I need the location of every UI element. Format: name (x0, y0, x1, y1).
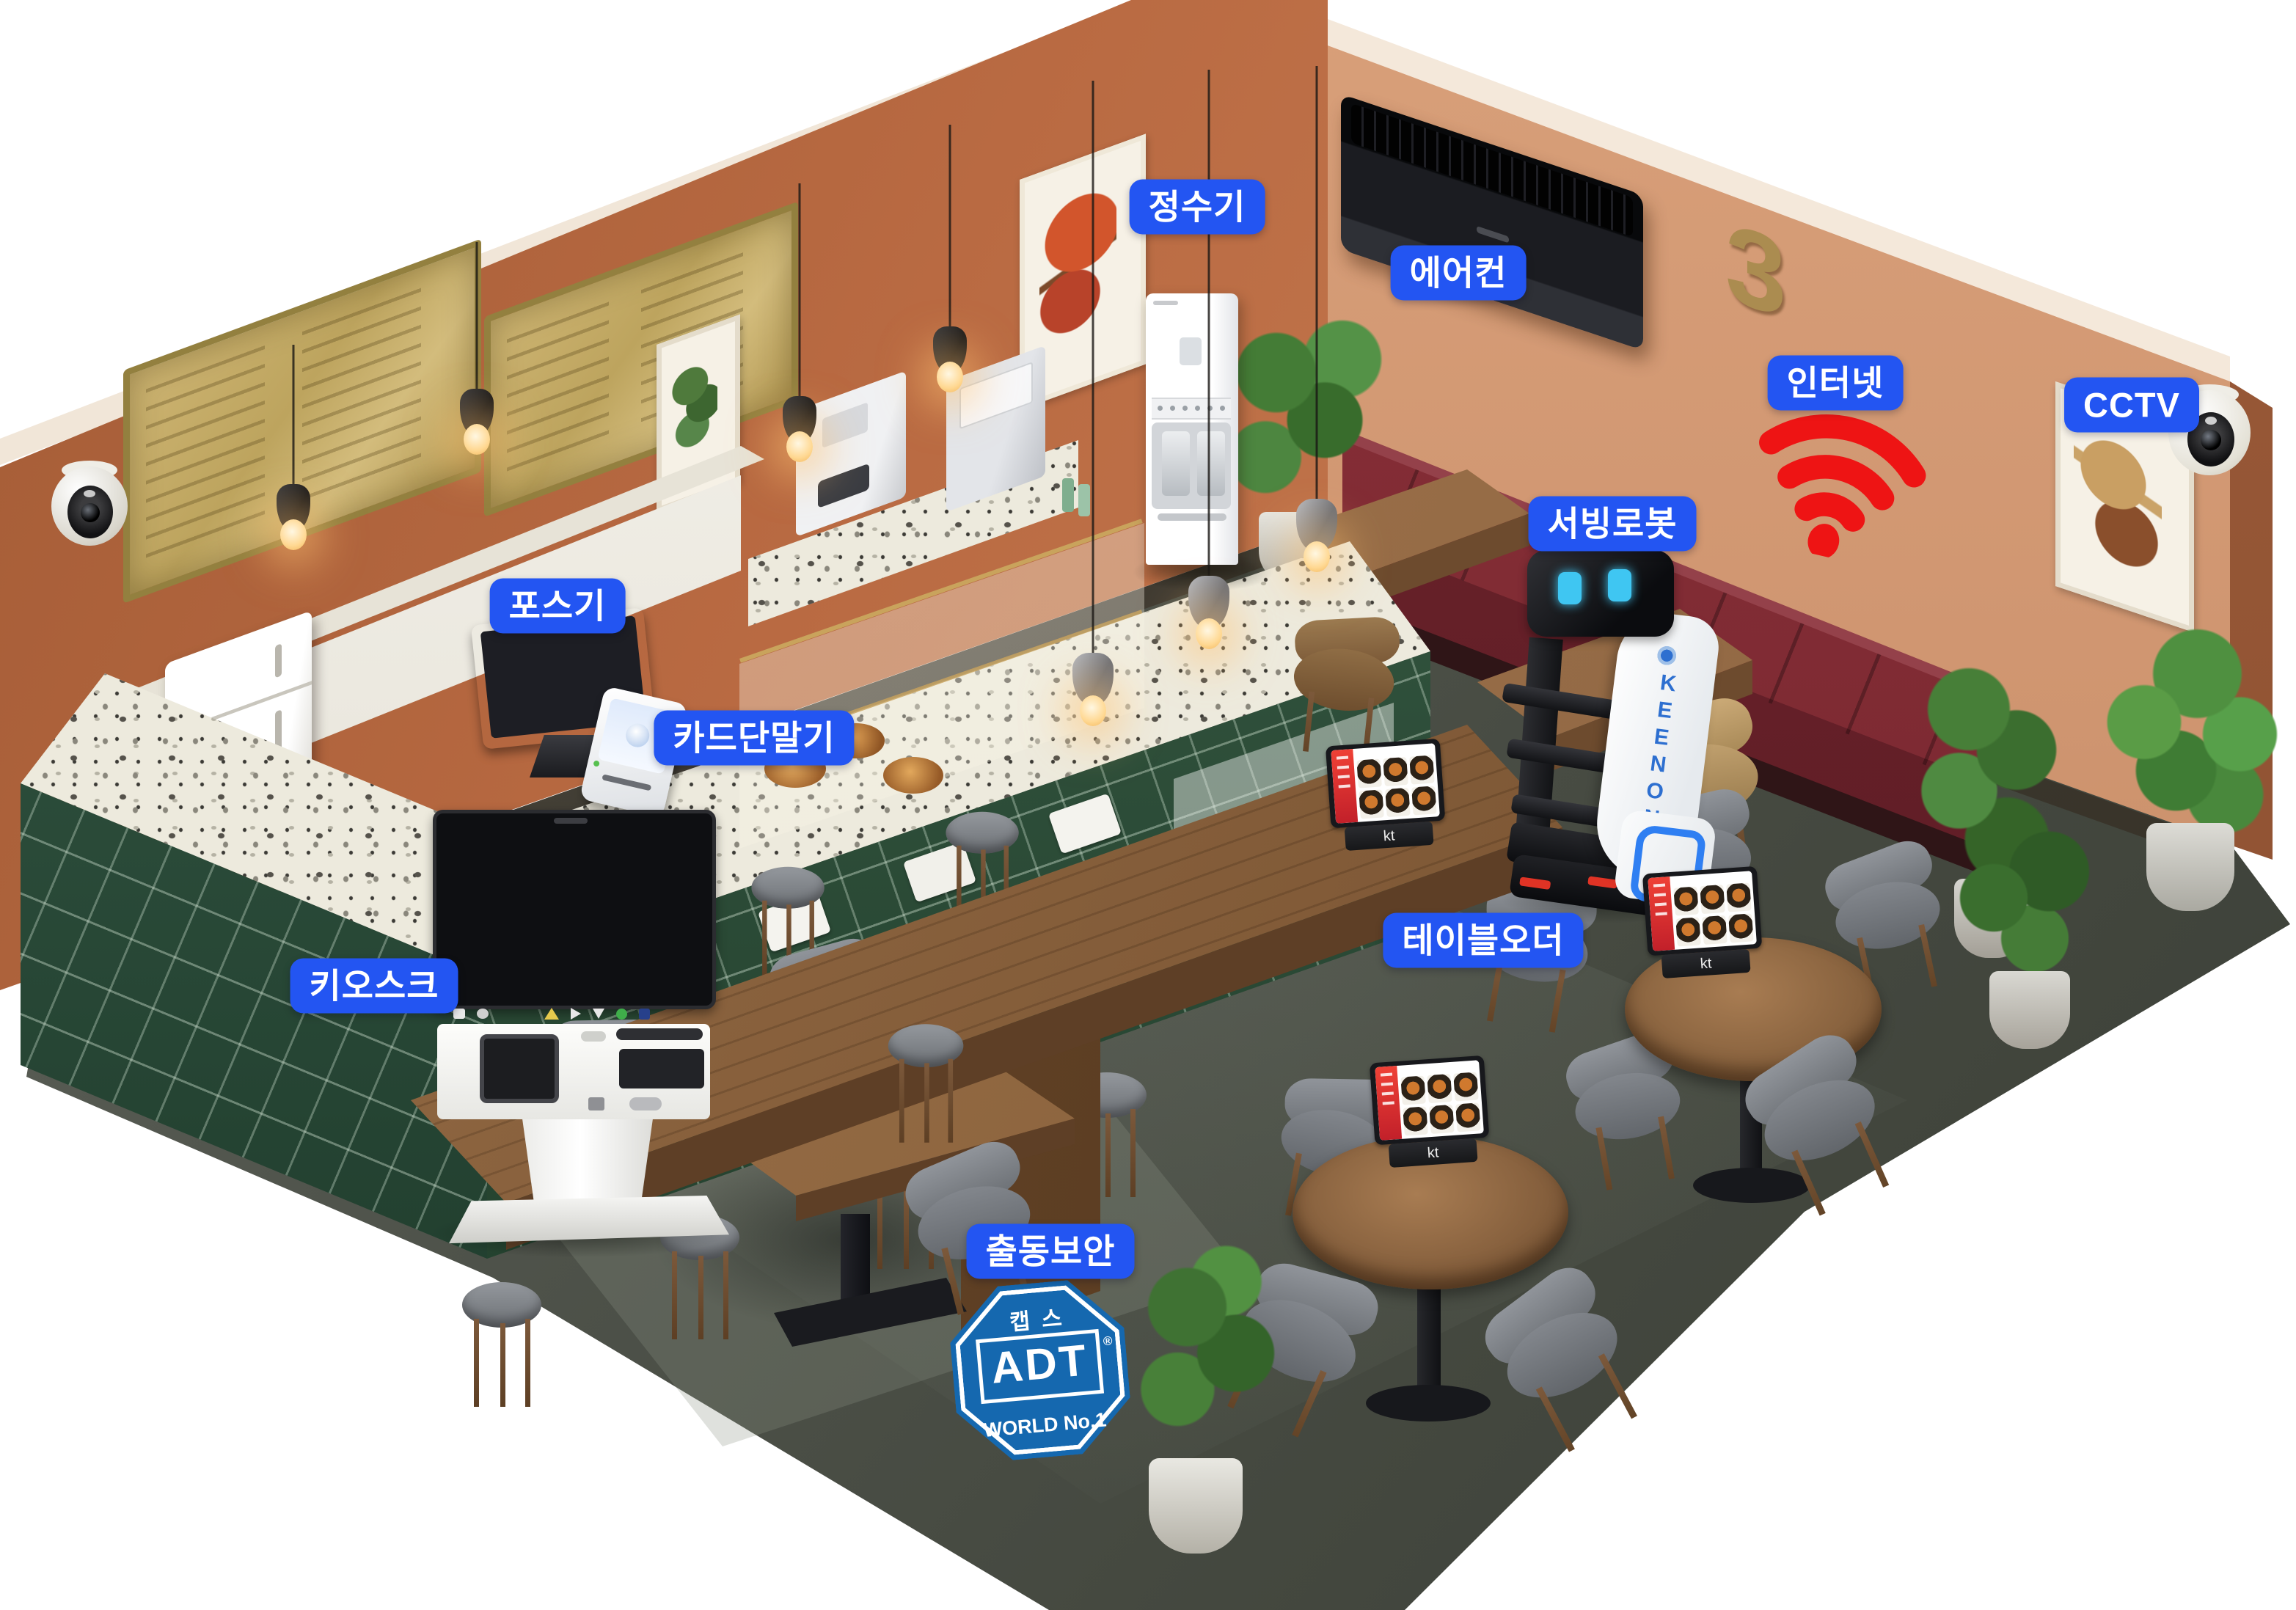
table-order-tablet: kt (1370, 1055, 1491, 1175)
adt-registered-mark: ® (1103, 1333, 1113, 1349)
table-base (1366, 1385, 1491, 1421)
drip-tray (1158, 513, 1226, 521)
plant-pot (2146, 823, 2234, 911)
terminal-logo (624, 721, 651, 749)
kiosk-logo-mark (554, 818, 588, 824)
dome-camera-icon-left (51, 461, 128, 550)
receipt-slot (616, 1028, 703, 1040)
plant-pot (1989, 971, 2070, 1049)
kiosk-pedestal (513, 1119, 662, 1204)
robot-eye (1558, 572, 1582, 604)
plant-pot (1149, 1458, 1243, 1554)
purifier-controls (1152, 398, 1231, 420)
label-security: 출동보안 (967, 1224, 1135, 1279)
keenon-logo-icon (1655, 643, 1679, 667)
table-pedestal (1417, 1273, 1441, 1398)
abstract-artwork (2074, 410, 2162, 586)
robot-taillight (1519, 877, 1551, 890)
ac-logo-mark (1477, 226, 1509, 244)
tablet-base: kt (1389, 1138, 1478, 1168)
glass-bottle (1062, 478, 1074, 512)
cafe-solutions-illustration: 3 (0, 0, 2296, 1610)
croissant (883, 757, 943, 794)
label-card-terminal: 카드단말기 (654, 711, 854, 766)
purifier-brand-mark (1153, 301, 1178, 305)
nfc-pad-icon (588, 1097, 604, 1110)
dispenser-paddle (1197, 431, 1225, 496)
barcode-scanner (480, 1034, 559, 1103)
kiosk-screen (433, 810, 716, 1009)
card-reader-slot (619, 1049, 704, 1088)
table-order-tablet: kt (1642, 866, 1764, 986)
adt-brand-text: ADT (976, 1329, 1104, 1404)
robot-brand-text: KEENON (1631, 669, 1681, 826)
label-table-order: 테이블오더 (1383, 913, 1583, 968)
robot-eye (1608, 569, 1631, 601)
table-order-tablet: kt (1326, 739, 1447, 858)
card-slot (602, 774, 651, 791)
contactless-icon (629, 1097, 662, 1110)
label-pos: 포스기 (490, 579, 626, 634)
label-air-conditioner: 에어컨 (1391, 246, 1527, 301)
dispenser-paddle (1162, 431, 1190, 496)
bar-stool (888, 1024, 965, 1143)
self-order-kiosk (411, 799, 741, 1247)
tablet-base: kt (1661, 949, 1751, 978)
robot-taillight (1587, 876, 1617, 888)
glass-bottle (1078, 484, 1090, 516)
label-water-purifier: 정수기 (1130, 180, 1265, 235)
kiosk-payment-panel (437, 1024, 710, 1119)
label-serving-robot: 서빙로봇 (1529, 497, 1697, 552)
kiosk-speaker (581, 1031, 606, 1042)
robot-head (1527, 550, 1674, 637)
status-led (593, 760, 600, 767)
purifier-display (1180, 337, 1202, 365)
wall-number: 3 (1725, 197, 1786, 343)
wooden-chair (1283, 613, 1402, 763)
label-internet: 인터넷 (1768, 356, 1904, 411)
kiosk-nav-icons (453, 1006, 695, 1021)
serving-robot: KEENON (1489, 550, 1724, 917)
leaf-artwork (672, 350, 717, 455)
tablet-base: kt (1345, 822, 1434, 851)
water-purifier (1146, 293, 1238, 565)
label-cctv: CCTV (2064, 378, 2199, 433)
label-kiosk: 키오스크 (290, 959, 458, 1014)
adt-octagon-badge: 캡스 ADT ® WORLD No.1 (946, 1276, 1135, 1465)
abstract-artwork (1039, 172, 1116, 361)
bar-stool (462, 1282, 543, 1407)
